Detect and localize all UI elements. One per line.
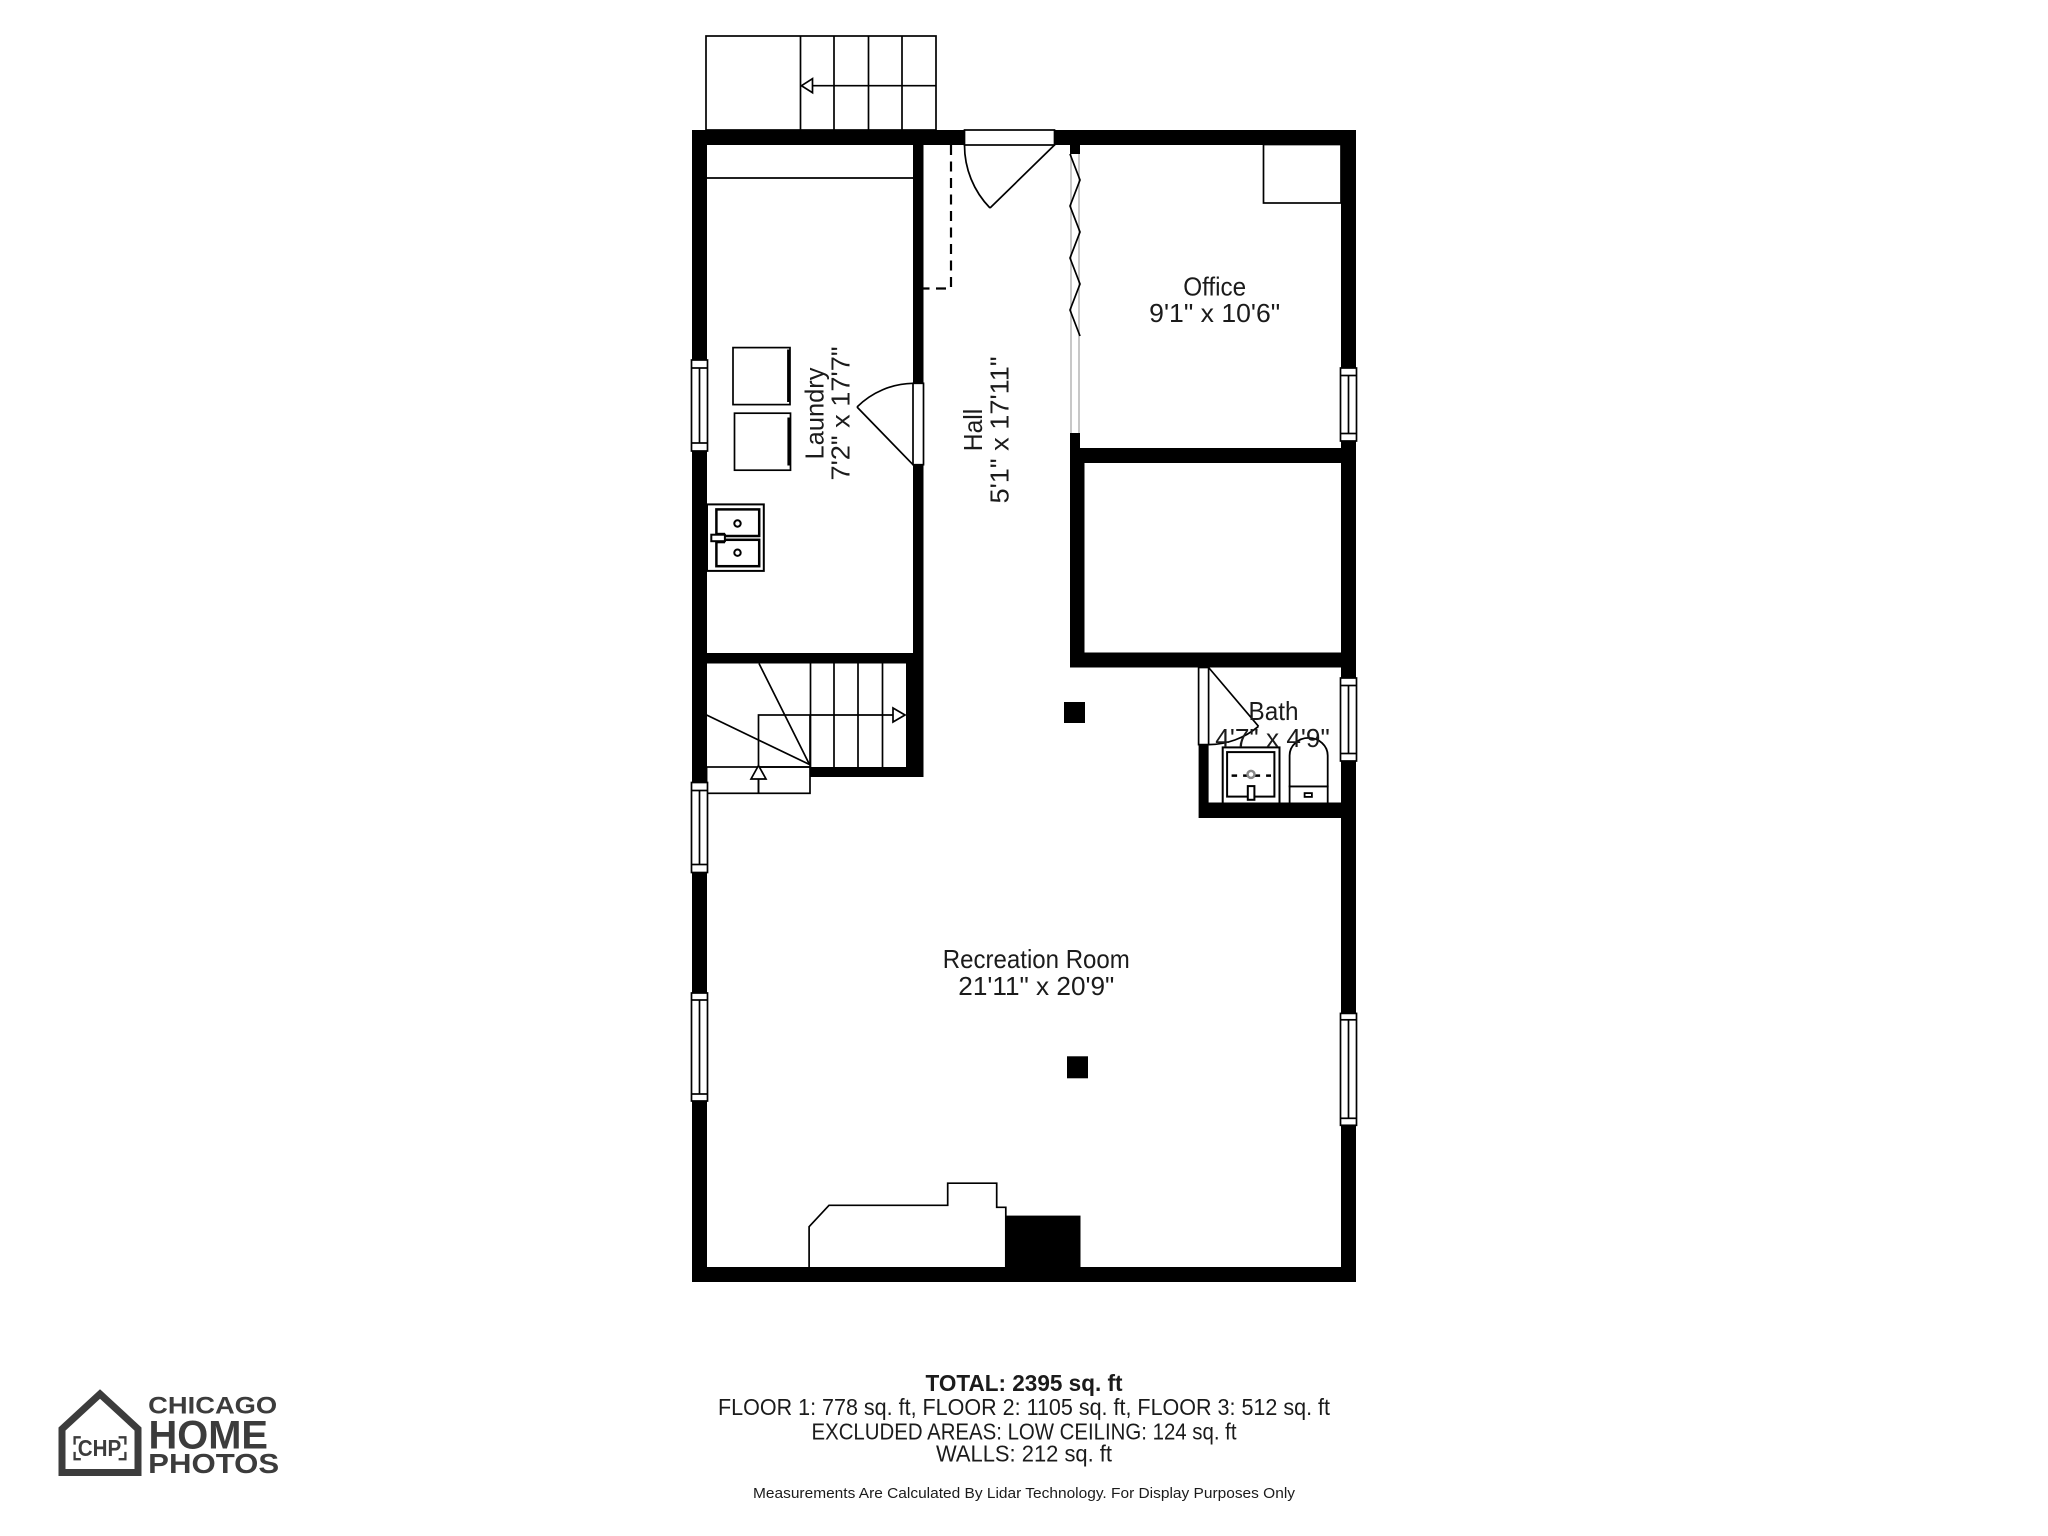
svg-text:TOTAL: 2395 sq. ft: TOTAL: 2395 sq. ft xyxy=(926,1370,1123,1396)
svg-text:9'1" x 10'6": 9'1" x 10'6" xyxy=(1149,298,1280,328)
svg-text:Office: Office xyxy=(1183,272,1246,302)
svg-text:CHP: CHP xyxy=(78,1435,122,1461)
svg-text:WALLS: 212 sq. ft: WALLS: 212 sq. ft xyxy=(936,1441,1113,1467)
svg-text:21'11" x 20'9": 21'11" x 20'9" xyxy=(958,971,1114,1001)
svg-text:Hall: Hall xyxy=(958,409,988,452)
svg-text:PHOTOS: PHOTOS xyxy=(148,1448,279,1479)
svg-text:FLOOR 1: 778 sq. ft, FLOOR 2:: FLOOR 1: 778 sq. ft, FLOOR 2: 1105 sq. f… xyxy=(718,1394,1331,1420)
svg-text:Measurements Are Calculated By: Measurements Are Calculated By Lidar Tec… xyxy=(753,1485,1296,1502)
svg-text:Bath: Bath xyxy=(1249,696,1299,726)
svg-text:5'1" x 17'11": 5'1" x 17'11" xyxy=(985,357,1015,504)
svg-text:4'7" x 4'9": 4'7" x 4'9" xyxy=(1215,723,1330,753)
svg-text:7'2" x 17'7": 7'2" x 17'7" xyxy=(826,347,856,481)
svg-text:Recreation Room: Recreation Room xyxy=(943,944,1130,974)
